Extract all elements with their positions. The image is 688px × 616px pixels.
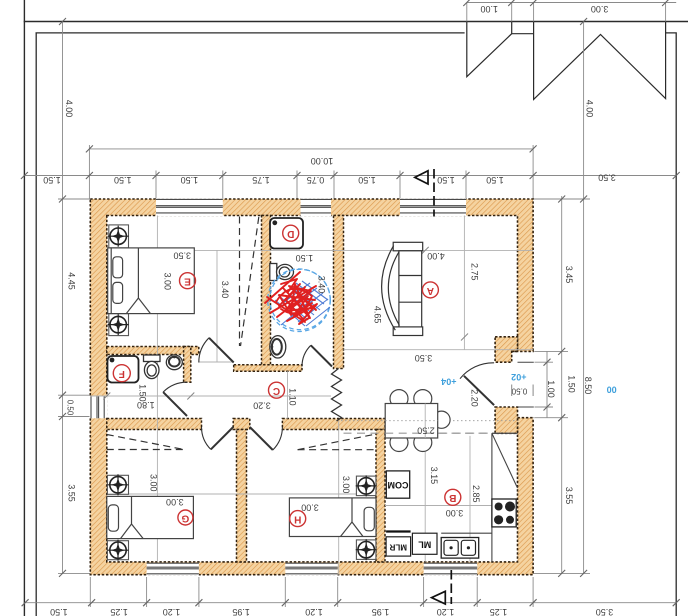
- svg-text:3.20: 3.20: [253, 400, 271, 410]
- svg-text:3.50: 3.50: [596, 607, 614, 616]
- svg-text:A: A: [427, 285, 434, 296]
- svg-text:3.00: 3.00: [591, 4, 609, 14]
- svg-text:1.50: 1.50: [181, 175, 199, 185]
- svg-text:1.25: 1.25: [490, 607, 508, 616]
- svg-text:H: H: [294, 513, 301, 524]
- svg-text:3.40: 3.40: [220, 281, 230, 299]
- svg-text:0.50: 0.50: [65, 400, 74, 416]
- svg-text:D: D: [287, 228, 294, 239]
- svg-text:3.50: 3.50: [598, 173, 616, 183]
- svg-text:1.95: 1.95: [232, 607, 250, 616]
- svg-text:4.00: 4.00: [64, 100, 74, 118]
- svg-text:10.00: 10.00: [311, 156, 334, 166]
- svg-text:2.75: 2.75: [470, 263, 480, 281]
- svg-text:3.40: 3.40: [317, 276, 327, 294]
- svg-text:3.00: 3.00: [301, 502, 319, 512]
- svg-text:3.15: 3.15: [429, 467, 439, 485]
- svg-text:MLR: MLR: [389, 542, 407, 551]
- svg-text:1.50: 1.50: [138, 384, 148, 402]
- svg-text:3.00: 3.00: [162, 273, 172, 291]
- svg-text:F: F: [119, 368, 125, 379]
- svg-text:3.50: 3.50: [173, 251, 191, 261]
- svg-text:E: E: [184, 276, 191, 287]
- svg-text:COM: COM: [388, 480, 409, 490]
- svg-text:G: G: [181, 512, 189, 523]
- svg-text:3.00: 3.00: [341, 476, 351, 494]
- svg-text:3.00: 3.00: [166, 497, 184, 507]
- svg-text:0.50: 0.50: [511, 386, 527, 395]
- svg-text:4.00: 4.00: [427, 251, 445, 261]
- svg-text:1.10: 1.10: [288, 388, 298, 406]
- svg-text:1.20: 1.20: [437, 607, 455, 616]
- svg-text:2.20: 2.20: [470, 389, 480, 407]
- svg-text:2.85: 2.85: [471, 485, 481, 503]
- svg-text:4.00: 4.00: [585, 100, 595, 118]
- svg-text:1.50: 1.50: [43, 175, 61, 185]
- svg-text:ML: ML: [418, 539, 431, 549]
- svg-text:1.50: 1.50: [114, 175, 132, 185]
- svg-text:2.50: 2.50: [417, 426, 435, 436]
- svg-text:4.65: 4.65: [372, 306, 382, 324]
- svg-text:1.50: 1.50: [296, 253, 314, 263]
- svg-text:1.50: 1.50: [50, 607, 68, 616]
- svg-text:1.00: 1.00: [480, 4, 498, 14]
- svg-text:B: B: [449, 492, 456, 503]
- svg-text:4.45: 4.45: [67, 272, 77, 290]
- svg-text:1.20: 1.20: [305, 607, 323, 616]
- svg-text:1.50: 1.50: [437, 175, 455, 185]
- svg-text:3.00: 3.00: [148, 474, 158, 492]
- svg-text:1.20: 1.20: [163, 607, 181, 616]
- svg-text:3.45: 3.45: [564, 266, 574, 284]
- svg-text:0.75: 0.75: [307, 175, 325, 185]
- svg-text:3.00: 3.00: [446, 508, 464, 518]
- svg-text:1.25: 1.25: [110, 607, 128, 616]
- svg-text:3.50: 3.50: [415, 353, 433, 363]
- svg-text:8.50: 8.50: [583, 377, 593, 395]
- svg-text:+04: +04: [441, 377, 456, 387]
- svg-text:3.55: 3.55: [67, 484, 77, 502]
- svg-text:1.50: 1.50: [567, 375, 577, 393]
- svg-text:1.95: 1.95: [372, 607, 390, 616]
- svg-text:1.50: 1.50: [358, 175, 376, 185]
- svg-text:+02: +02: [511, 372, 526, 382]
- svg-text:00: 00: [607, 385, 617, 395]
- svg-text:1.50: 1.50: [486, 175, 504, 185]
- svg-text:1.00: 1.00: [546, 380, 556, 398]
- svg-text:1.75: 1.75: [252, 175, 270, 185]
- svg-text:1.80: 1.80: [137, 400, 155, 410]
- svg-text:C: C: [273, 385, 280, 396]
- svg-text:3.55: 3.55: [564, 487, 574, 505]
